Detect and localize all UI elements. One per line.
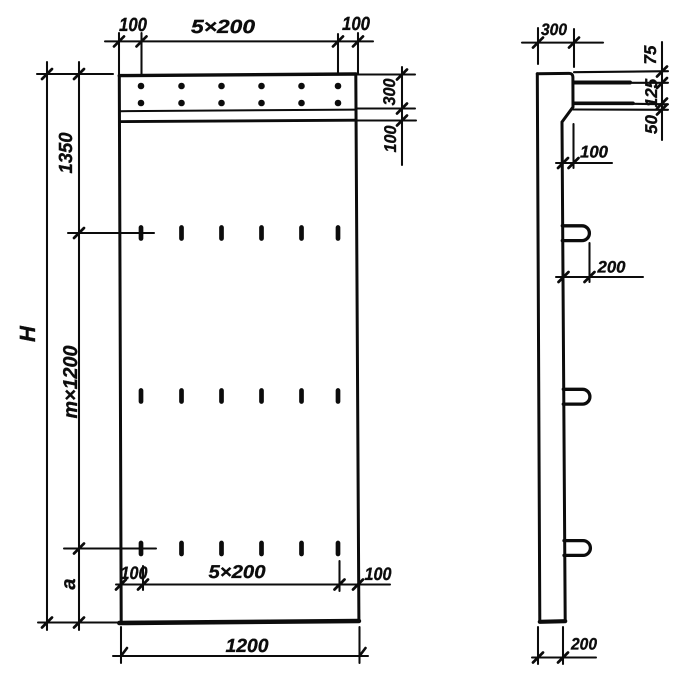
svg-text:1350: 1350: [56, 132, 77, 173]
svg-text:300: 300: [541, 21, 568, 39]
svg-text:200: 200: [596, 259, 626, 277]
svg-text:100: 100: [381, 125, 400, 153]
svg-text:100: 100: [342, 14, 370, 35]
svg-text:5×200: 5×200: [191, 17, 256, 38]
svg-text:100: 100: [119, 15, 147, 36]
svg-text:75: 75: [641, 45, 660, 64]
svg-text:a: a: [58, 578, 80, 589]
svg-text:100: 100: [121, 563, 148, 583]
svg-text:H: H: [15, 325, 40, 342]
svg-text:125: 125: [642, 78, 661, 107]
svg-text:200: 200: [570, 636, 598, 654]
svg-text:100: 100: [580, 143, 609, 162]
svg-text:100: 100: [365, 564, 392, 584]
svg-text:300: 300: [380, 78, 399, 106]
svg-text:1200: 1200: [226, 636, 269, 657]
svg-text:5×200: 5×200: [209, 561, 267, 582]
svg-text:50: 50: [642, 115, 661, 134]
svg-text:m×1200: m×1200: [60, 346, 82, 419]
